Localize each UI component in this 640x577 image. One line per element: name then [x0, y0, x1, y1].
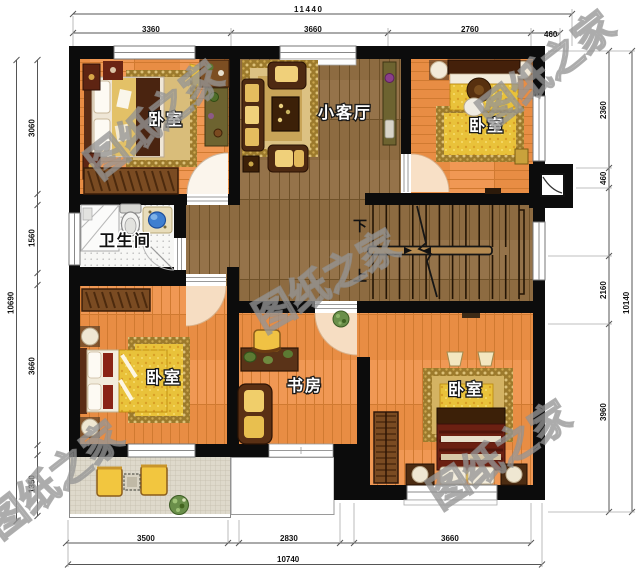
- svg-text:10140: 10140: [622, 291, 631, 314]
- svg-text:卫生间: 卫生间: [99, 231, 152, 250]
- svg-text:3500: 3500: [137, 534, 155, 543]
- svg-text:1560: 1560: [28, 229, 37, 247]
- svg-text:下: 下: [353, 218, 367, 234]
- svg-text:2760: 2760: [461, 25, 479, 34]
- svg-text:卧室: 卧室: [146, 368, 182, 387]
- svg-text:3060: 3060: [28, 119, 37, 137]
- svg-text:3660: 3660: [441, 534, 459, 543]
- svg-text:2830: 2830: [280, 534, 298, 543]
- svg-text:3660: 3660: [28, 357, 37, 375]
- svg-text:10690: 10690: [7, 291, 16, 314]
- svg-text:10740: 10740: [277, 555, 300, 564]
- svg-text:3360: 3360: [142, 25, 160, 34]
- svg-text:2160: 2160: [599, 281, 608, 299]
- svg-text:小客厅: 小客厅: [318, 103, 372, 122]
- svg-text:卧室: 卧室: [448, 380, 484, 399]
- svg-text:460: 460: [599, 171, 608, 185]
- svg-text:3960: 3960: [599, 403, 608, 421]
- svg-text:2360: 2360: [599, 101, 608, 119]
- svg-text:3660: 3660: [304, 25, 322, 34]
- svg-text:书房: 书房: [287, 376, 323, 395]
